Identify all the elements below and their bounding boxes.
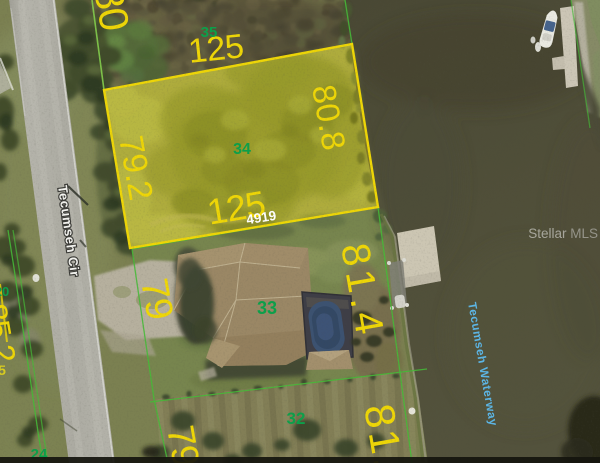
svg-text:32: 32 bbox=[287, 409, 306, 428]
svg-text:35: 35 bbox=[201, 24, 218, 41]
svg-text:34: 34 bbox=[233, 141, 251, 158]
svg-text:Stellar MLS: Stellar MLS bbox=[528, 226, 598, 241]
svg-text:5: 5 bbox=[0, 362, 6, 378]
svg-text:20: 20 bbox=[0, 284, 9, 299]
svg-text:33: 33 bbox=[257, 298, 277, 318]
svg-text:79: 79 bbox=[132, 275, 180, 322]
svg-text:79: 79 bbox=[158, 422, 206, 463]
